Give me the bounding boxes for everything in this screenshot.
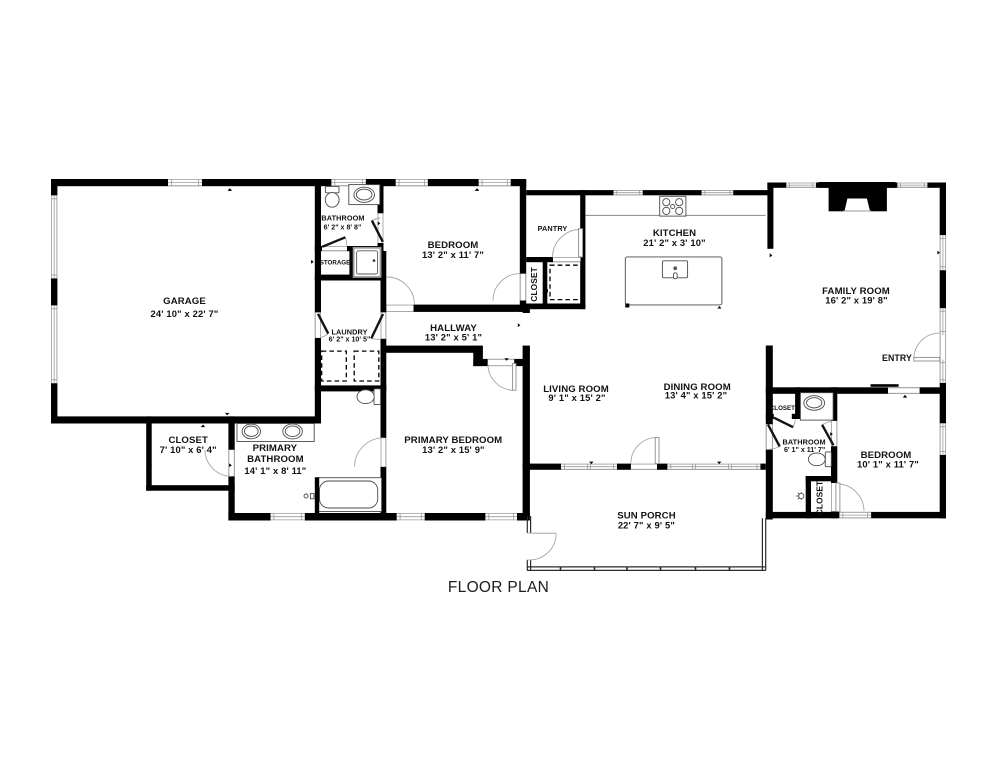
svg-text:14' 1" x 8' 11": 14' 1" x 8' 11" (244, 465, 306, 476)
svg-text:24' 10" x 22' 7": 24' 10" x 22' 7" (151, 308, 219, 319)
svg-text:13' 2" x 5' 1": 13' 2" x 5' 1" (425, 332, 482, 343)
svg-text:6' 2" x 8' 8": 6' 2" x 8' 8" (324, 223, 362, 231)
svg-text:PRIMARY: PRIMARY (253, 443, 298, 454)
svg-text:13' 4" x 15' 2": 13' 4" x 15' 2" (665, 389, 728, 400)
svg-text:16' 2" x 19' 8": 16' 2" x 19' 8" (825, 295, 888, 306)
svg-text:6' 2" x 10' 5": 6' 2" x 10' 5" (329, 336, 371, 344)
svg-text:CLOSET: CLOSET (770, 405, 795, 412)
svg-text:ENTRY: ENTRY (882, 353, 912, 363)
svg-text:BATHROOM: BATHROOM (247, 454, 304, 465)
svg-text:BATHROOM: BATHROOM (321, 214, 364, 223)
svg-text:10' 1" x 11' 7": 10' 1" x 11' 7" (857, 459, 919, 470)
svg-text:21' 2" x 3' 10": 21' 2" x 3' 10" (643, 237, 706, 248)
svg-text:13' 2" x 15' 9": 13' 2" x 15' 9" (422, 444, 485, 455)
svg-text:9' 1" x 15' 2": 9' 1" x 15' 2" (548, 392, 605, 403)
svg-text:GARAGE: GARAGE (163, 296, 206, 307)
svg-text:PANTRY: PANTRY (538, 224, 568, 233)
svg-text:CLOSET: CLOSET (815, 480, 825, 515)
svg-text:7' 10" x 6' 4": 7' 10" x 6' 4" (160, 444, 217, 455)
svg-text:FLOOR PLAN: FLOOR PLAN (448, 579, 549, 596)
svg-text:STORAGE: STORAGE (320, 259, 350, 266)
svg-text:6' 1" x 11' 7": 6' 1" x 11' 7" (784, 446, 825, 454)
svg-text:CLOSET: CLOSET (529, 266, 539, 301)
svg-text:13' 2" x 11' 7": 13' 2" x 11' 7" (422, 249, 484, 260)
svg-text:22' 7" x 9' 5": 22' 7" x 9' 5" (618, 520, 675, 531)
